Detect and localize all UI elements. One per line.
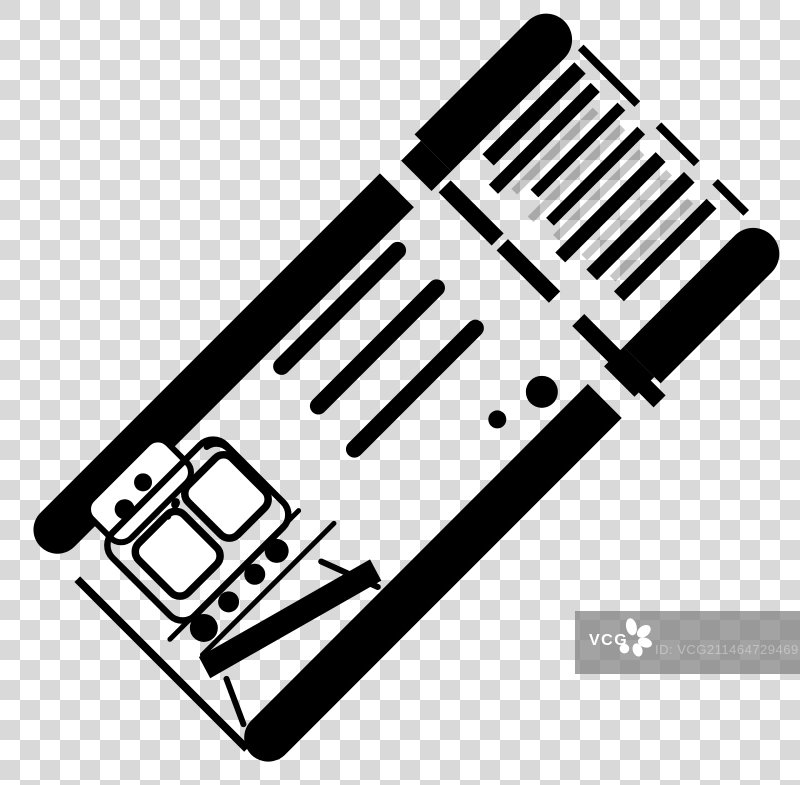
- bumper-light: [260, 534, 294, 568]
- transparent-checkerboard-background: VCG ID: VCG211464729469: [0, 0, 800, 785]
- vcg-watermark: VCG ID: VCG211464729469: [575, 611, 800, 674]
- stamp-dot-large: [519, 369, 564, 414]
- vcg-flower-icon: [611, 616, 657, 662]
- bottom-band-train-side: [234, 384, 621, 771]
- tear-tick-top: [439, 180, 504, 245]
- watermark-id-text: ID: VCG211464729469: [655, 642, 799, 657]
- tear-dash-middle: [497, 239, 561, 303]
- right-edge-dash: [712, 179, 749, 216]
- stamp-dot-small: [485, 407, 510, 432]
